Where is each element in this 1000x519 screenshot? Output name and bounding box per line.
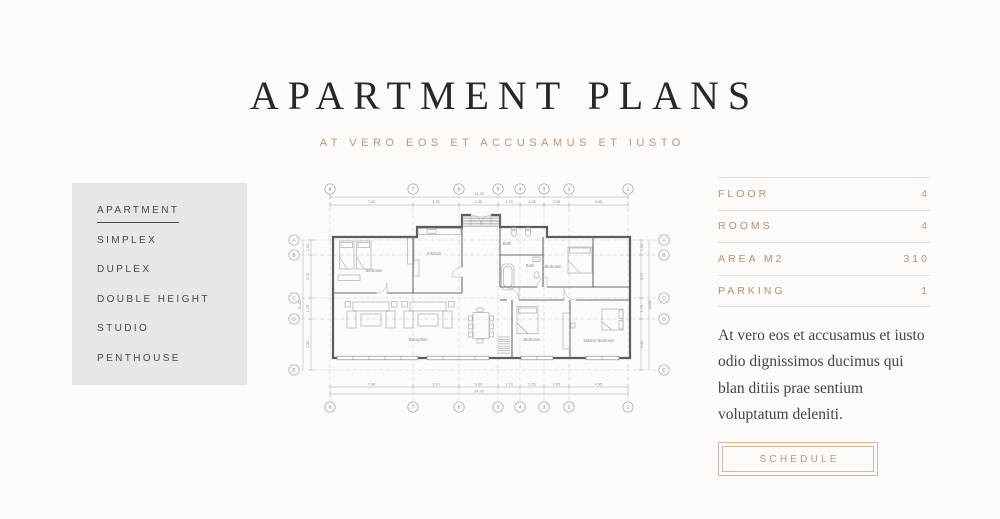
room-label: Bedroom <box>524 337 542 342</box>
room-label: Bath <box>503 241 512 246</box>
room-label: Bedroom <box>545 264 563 269</box>
dimension-label: 10.80 <box>648 300 652 310</box>
dimension-label: 3.75 <box>640 273 644 280</box>
dimension-label: 3.30 <box>475 200 482 204</box>
dimension-label: 3.70 <box>432 200 439 204</box>
floor-plan: 8877665544332211AABBCCDDEE7.003.703.301.… <box>281 175 671 420</box>
apartment-plans-section: APARTMENT PLANS AT VERO EOS ET ACCUSAMUS… <box>0 0 1000 519</box>
dimension-label: 3.30 <box>475 382 482 386</box>
grid-bubble-label: A <box>292 238 296 244</box>
grid-bubble-label: 2 <box>568 187 571 193</box>
grid-bubble-label: 4 <box>519 187 522 193</box>
room-label: Bath <box>526 263 535 268</box>
page-title: APARTMENT PLANS <box>0 72 1000 119</box>
furniture <box>338 228 623 350</box>
grid-bubble-label: 3 <box>543 187 546 193</box>
schedule-button[interactable]: SCHEDULE <box>718 442 878 476</box>
grid-bubble-label: E <box>292 368 295 374</box>
grid-bubble-label: 1 <box>627 187 630 193</box>
dimension-label: 2.05 <box>528 382 535 386</box>
dimension-label: 4.30 <box>306 341 310 348</box>
room-label: Master Bedroom <box>584 338 615 343</box>
grid-bubble-label: A <box>662 238 666 244</box>
dimension-label: 1.70 <box>505 200 512 204</box>
grid-bubble-label: 4 <box>519 405 522 411</box>
dimension-label: 2.05 <box>528 200 535 204</box>
grid-bubble-label: 5 <box>497 187 500 193</box>
grid-bubble-label: 7 <box>412 187 415 193</box>
menu-item-duplex[interactable]: DUPLEX <box>97 264 247 294</box>
menu-item-simplex[interactable]: SIMPLEX <box>97 235 247 265</box>
grid-bubble-label: 2 <box>568 405 571 411</box>
dimension-label: 7.00 <box>368 200 375 204</box>
grid-bubble-label: 6 <box>458 187 461 193</box>
grid-bubble-label: D <box>292 317 296 323</box>
grid-bubble-label: 3 <box>543 405 546 411</box>
floor-plan-annotations: 8877665544332211AABBCCDDEE7.003.703.301.… <box>289 184 669 412</box>
spec-row-floor: FLOOR 4 <box>718 177 930 210</box>
dimension-label: 24.75 <box>474 192 484 196</box>
menu-item-double-height[interactable]: DOUBLE HEIGHT <box>97 294 247 324</box>
section-header: APARTMENT PLANS AT VERO EOS ET ACCUSAMUS… <box>0 0 1000 149</box>
grid-bubble-label: B <box>292 253 295 259</box>
spec-label: ROOMS <box>718 220 773 232</box>
dimension-label: 4.95 <box>595 200 602 204</box>
dimension-label: 4.95 <box>595 382 602 386</box>
spec-value: 1 <box>921 285 930 297</box>
plan-details: FLOOR 4 ROOMS 4 AREA M2 310 PARKING 1 At… <box>718 177 930 476</box>
grid-bubble-label: C <box>292 296 296 302</box>
menu-item-apartment[interactable]: APARTMENT <box>97 205 247 235</box>
dimension-label: 1.00 <box>306 244 310 251</box>
dimension-label: 1.70 <box>505 382 512 386</box>
spec-table: FLOOR 4 ROOMS 4 AREA M2 310 PARKING 1 <box>718 177 930 307</box>
spec-row-area: AREA M2 310 <box>718 242 930 275</box>
dimension-label: 2.05 <box>553 200 560 204</box>
grid-bubble-label: C <box>662 296 666 302</box>
spec-label: AREA M2 <box>718 253 785 265</box>
spec-row-rooms: ROOMS 4 <box>718 210 930 243</box>
menu-item-penthouse[interactable]: PENTHOUSE <box>97 353 247 383</box>
dimension-label: 7.00 <box>368 382 375 386</box>
spec-label: PARKING <box>718 285 785 297</box>
grid-bubble-label: D <box>662 317 666 323</box>
grid-bubble-label: B <box>662 253 665 259</box>
dimension-label: 24.75 <box>474 389 484 393</box>
dimension-label: 1.75 <box>306 305 310 312</box>
grid-bubble-label: 1 <box>627 405 630 411</box>
dimension-label: 10.80 <box>298 300 302 310</box>
grid-bubble-label: 7 <box>412 405 415 411</box>
grid-bubble-label: 5 <box>497 405 500 411</box>
spec-row-parking: PARKING 1 <box>718 275 930 308</box>
grid-bubble-label: 8 <box>329 187 332 193</box>
plan-type-menu: APARTMENT SIMPLEX DUPLEX DOUBLE HEIGHT S… <box>72 183 247 385</box>
grid-bubble-label: 6 <box>458 405 461 411</box>
dimension-label: 3.70 <box>432 382 439 386</box>
spec-value: 4 <box>921 188 930 200</box>
spec-value: 4 <box>921 220 930 232</box>
spec-value: 310 <box>903 253 930 265</box>
dimension-label: 1.75 <box>640 305 644 312</box>
schedule-button-label: SCHEDULE <box>722 446 874 472</box>
stairs <box>464 217 511 353</box>
spec-label: FLOOR <box>718 188 769 200</box>
grid-bubble-label: E <box>662 368 665 374</box>
dimension-label: 1.00 <box>640 244 644 251</box>
description-text: At vero eos et accusamus et iusto odio d… <box>718 323 925 428</box>
dimension-label: 2.05 <box>553 382 560 386</box>
menu-item-studio[interactable]: STUDIO <box>97 323 247 353</box>
room-label: Kitchen <box>427 251 442 256</box>
grid-bubble-label: 8 <box>329 405 332 411</box>
page-subtitle: AT VERO EOS ET ACCUSAMUS ET IUSTO <box>0 137 1000 149</box>
room-label: Reception <box>409 337 429 342</box>
dimension-label: 3.75 <box>306 273 310 280</box>
dimension-label: 4.30 <box>640 341 644 348</box>
